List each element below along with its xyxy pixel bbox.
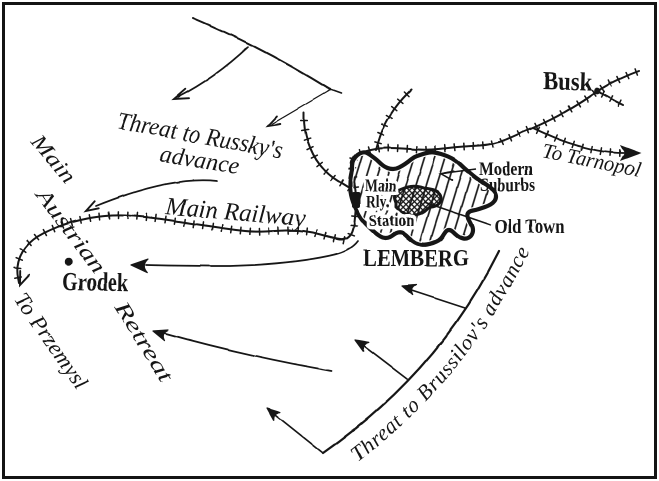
svg-text:Station: Station xyxy=(369,211,414,230)
svg-text:Old Town: Old Town xyxy=(495,216,565,238)
svg-text:Suburbs: Suburbs xyxy=(480,175,535,196)
svg-text:Busk: Busk xyxy=(543,66,593,97)
svg-text:Grodek: Grodek xyxy=(62,267,129,297)
svg-text:Rly.: Rly. xyxy=(366,192,389,211)
svg-text:LEMBERG: LEMBERG xyxy=(363,246,469,272)
